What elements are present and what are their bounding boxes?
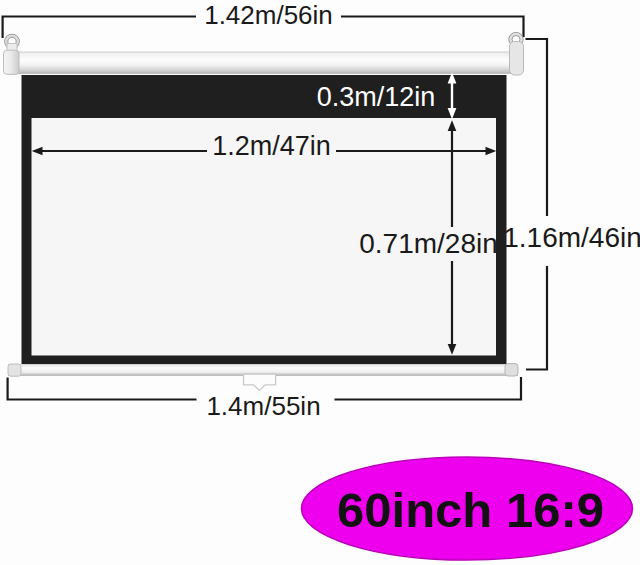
svg-text:0.71m/28in: 0.71m/28in (359, 228, 498, 259)
svg-text:60inch 16:9: 60inch 16:9 (337, 483, 604, 537)
svg-text:0.3m/12in: 0.3m/12in (317, 82, 436, 112)
svg-text:1.2m/47in: 1.2m/47in (212, 131, 331, 161)
svg-text:1.4m/55in: 1.4m/55in (206, 391, 320, 421)
svg-text:1.42m/56in: 1.42m/56in (204, 0, 333, 30)
svg-text:1.16m/46in: 1.16m/46in (503, 222, 640, 253)
